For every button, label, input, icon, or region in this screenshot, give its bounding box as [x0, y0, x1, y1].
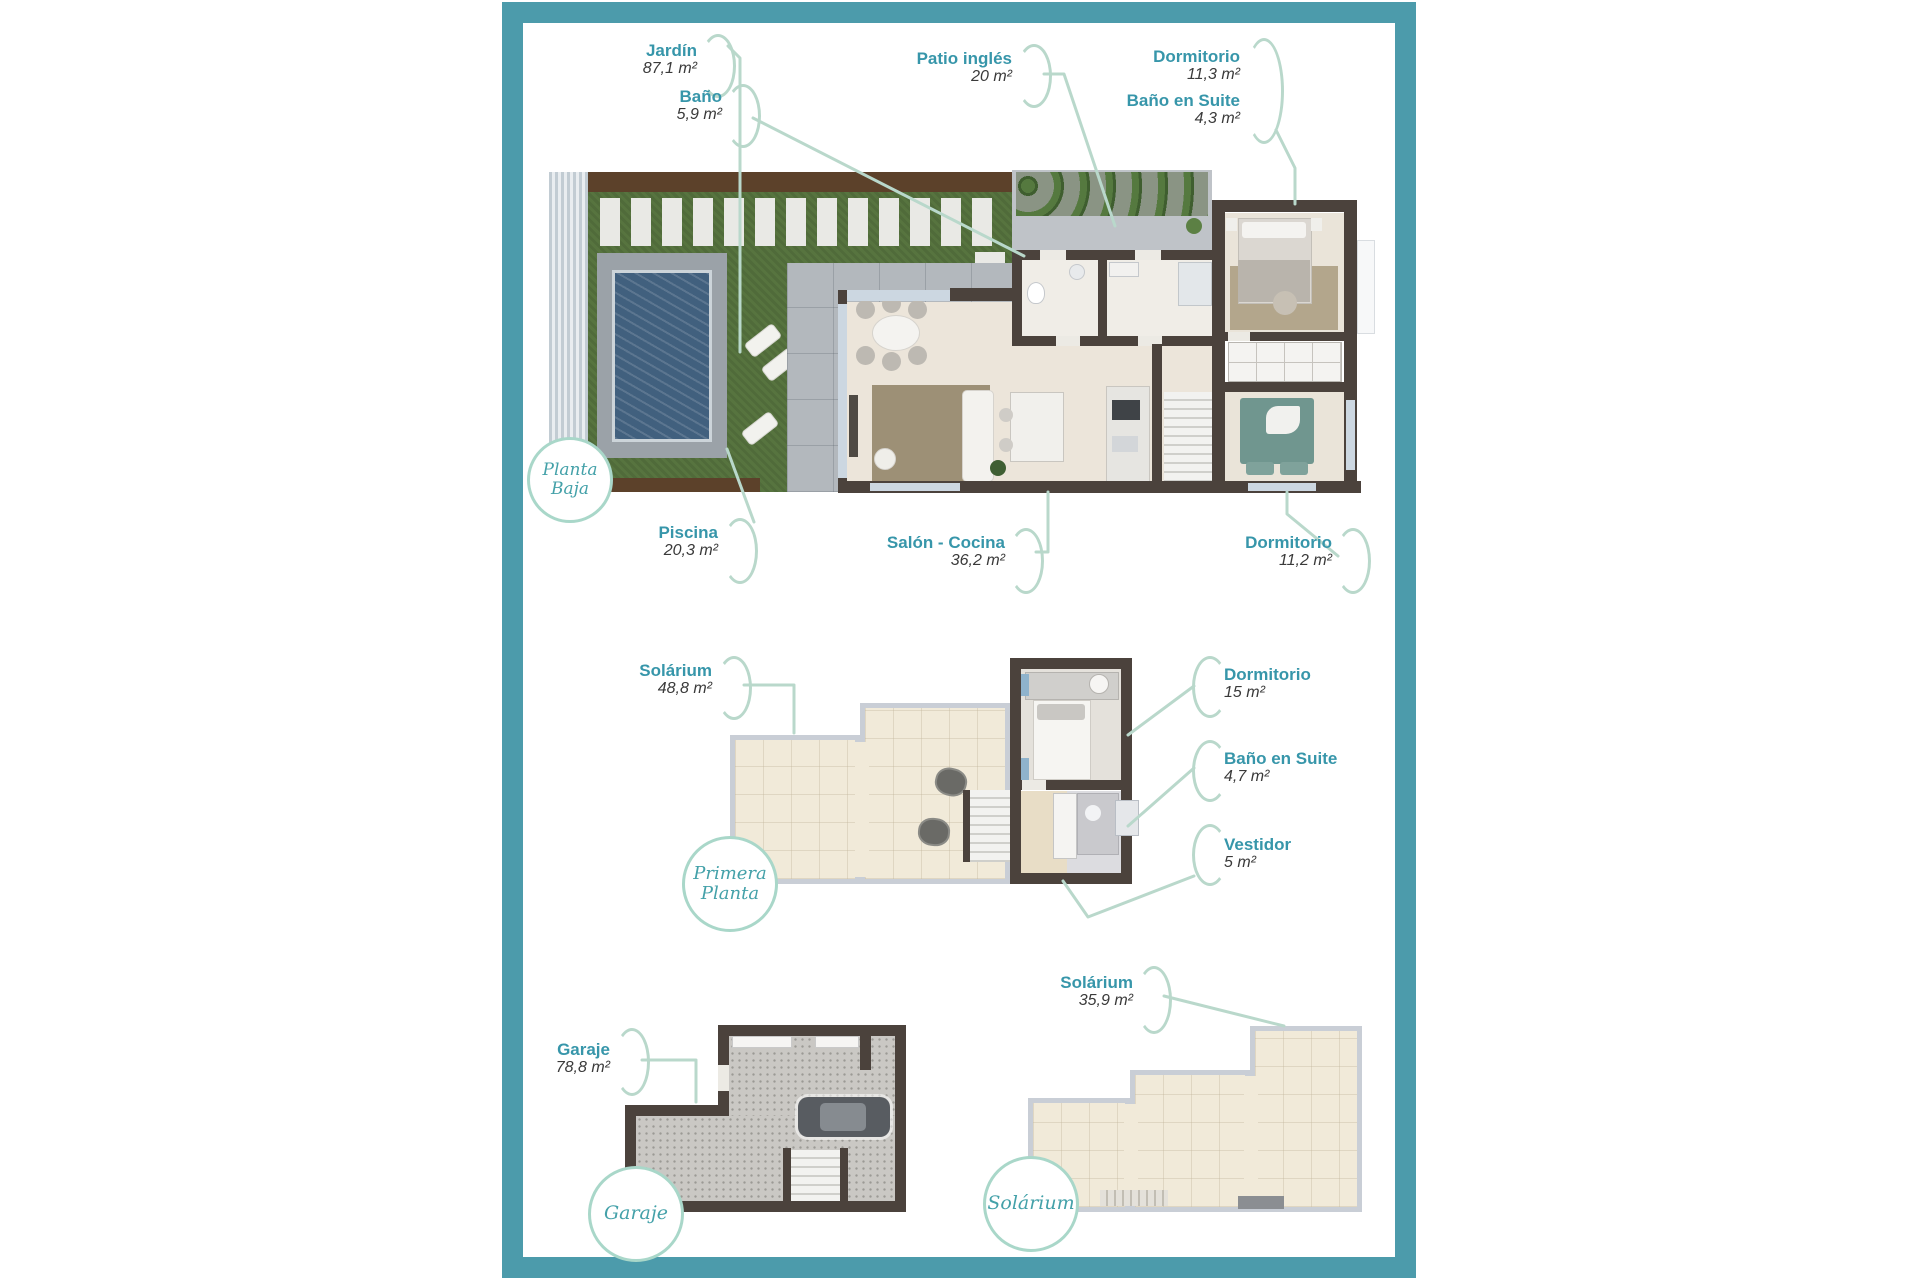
wall	[718, 1025, 906, 1036]
closet	[1053, 793, 1077, 859]
shelf	[732, 1036, 792, 1048]
callout-solarium-488: Solárium 48,8 m²	[562, 662, 712, 699]
door-opening	[718, 1065, 729, 1091]
nightstand	[1311, 218, 1322, 231]
stepping-stones	[600, 198, 1000, 246]
wall	[783, 1148, 791, 1206]
callout-patio-ingles: Patio inglés 20 m²	[862, 50, 1012, 87]
chair	[882, 352, 901, 371]
dining-table	[872, 315, 920, 351]
callout-piscina: Piscina 20,3 m²	[568, 524, 718, 561]
pillow	[1280, 462, 1308, 475]
room-name: Patio inglés	[862, 50, 1012, 68]
callout-arc	[1335, 528, 1371, 594]
chair	[856, 300, 875, 319]
stair-block	[1238, 1196, 1284, 1209]
stool	[999, 408, 1013, 422]
room-area: 87,1 m²	[547, 60, 697, 78]
curtain	[1021, 758, 1029, 780]
room-name: Dormitorio	[1182, 534, 1332, 552]
toilet	[1027, 282, 1045, 304]
badge-line: Solárium	[987, 1193, 1074, 1214]
floorplan-primera-planta	[700, 650, 1180, 895]
room-name: Baño en Suite	[1090, 92, 1240, 110]
badge-line: Planta	[701, 884, 759, 904]
badge-line: Garaje	[604, 1203, 668, 1224]
callout-arc	[1016, 44, 1052, 108]
room-area: 35,9 m²	[983, 992, 1133, 1010]
room-name: Solárium	[983, 974, 1133, 992]
callout-vestidor: Vestidor 5 m²	[1224, 836, 1374, 873]
window-wall	[838, 290, 847, 492]
wall	[1344, 200, 1357, 312]
wall	[1010, 658, 1132, 669]
room-name: Salón - Cocina	[855, 534, 1005, 552]
wall	[1012, 336, 1225, 346]
badge-line: Planta	[543, 461, 598, 480]
callout-jardin: Jardín 87,1 m²	[547, 42, 697, 79]
door-opening	[1135, 250, 1161, 260]
curtain	[1021, 674, 1029, 696]
room-name: Piscina	[568, 524, 718, 542]
shelf	[815, 1036, 859, 1048]
chair	[856, 346, 875, 365]
room-area: 78,8 m²	[460, 1059, 610, 1077]
room-name: Jardín	[547, 42, 697, 60]
callout-bano-suite-43: Baño en Suite 4,3 m²	[1090, 92, 1240, 129]
door-opening	[1040, 250, 1066, 260]
vanity	[1109, 262, 1139, 277]
tv-console	[849, 395, 858, 457]
badge-garaje: Garaje	[588, 1166, 684, 1262]
room-name: Vestidor	[1224, 836, 1374, 854]
bed-throw	[1266, 406, 1300, 434]
wall	[838, 290, 847, 304]
room-area: 4,7 m²	[1224, 768, 1374, 786]
side-terrace	[1357, 240, 1375, 334]
badge-primera-planta: Primera Planta	[682, 836, 778, 932]
callout-arc	[1008, 528, 1044, 594]
wall	[840, 1148, 848, 1206]
terrace-joint	[1244, 1076, 1258, 1204]
plants	[1016, 172, 1208, 216]
shower	[1115, 800, 1139, 836]
door-opening	[1228, 332, 1250, 341]
wall	[1212, 200, 1357, 212]
stairs	[1164, 392, 1212, 482]
wall	[860, 1025, 871, 1070]
pillows	[1242, 222, 1306, 238]
stool	[999, 438, 1013, 452]
callout-arc	[1192, 740, 1228, 802]
washbasin	[1085, 805, 1101, 821]
chair	[908, 300, 927, 319]
floorplan-brochure-page: Jardín 87,1 m² Baño 5,9 m² Patio inglés …	[0, 0, 1920, 1280]
pool	[612, 270, 712, 442]
room-area: 11,2 m²	[1182, 552, 1332, 570]
wall	[625, 1105, 729, 1116]
floorplan-planta-baja	[549, 170, 1361, 492]
callout-dormitorio-15: Dormitorio 15 m²	[1224, 666, 1374, 703]
badge-line: Baja	[551, 480, 589, 499]
callout-bano: Baño 5,9 m²	[572, 88, 722, 125]
room-area: 4,3 m²	[1090, 110, 1240, 128]
sink	[1112, 436, 1138, 452]
room-name: Dormitorio	[1090, 48, 1240, 66]
wardrobe	[1228, 342, 1342, 382]
callout-garaje: Garaje 78,8 m²	[460, 1041, 610, 1078]
wall	[1212, 200, 1225, 340]
pillow	[1246, 462, 1274, 475]
callout-arc	[1192, 824, 1228, 886]
washbasin	[1069, 264, 1085, 280]
callout-arc	[1244, 38, 1284, 144]
room-name: Dormitorio	[1224, 666, 1374, 684]
room-area: 36,2 m²	[855, 552, 1005, 570]
kitchen-island	[1010, 392, 1064, 462]
badge-line: Primera	[693, 864, 767, 884]
badge-planta-baja: Planta Baja	[527, 437, 613, 523]
window	[1248, 483, 1316, 491]
callout-arc	[1192, 656, 1228, 718]
plant	[990, 460, 1006, 476]
stairs	[1100, 1190, 1168, 1206]
pouf	[874, 448, 896, 470]
door-opening	[1022, 780, 1046, 790]
wall	[1225, 382, 1357, 392]
wall	[1010, 658, 1021, 884]
wall	[1121, 658, 1132, 884]
shower	[1178, 262, 1212, 306]
wall	[1098, 258, 1107, 346]
wall	[950, 288, 1014, 301]
stairs	[791, 1150, 840, 1201]
room-area: 48,8 m²	[562, 680, 712, 698]
pouf	[1273, 291, 1297, 315]
callout-salon-cocina: Salón - Cocina 36,2 m²	[855, 534, 1005, 571]
room-area: 15 m²	[1224, 684, 1374, 702]
callout-arc	[614, 1028, 650, 1096]
wall	[1010, 873, 1132, 884]
callout-arc	[725, 84, 761, 148]
chair	[908, 346, 927, 365]
car-roof	[820, 1103, 866, 1131]
door-opening	[1056, 336, 1080, 346]
wall	[1212, 340, 1225, 483]
mulch-strip	[588, 172, 1012, 192]
pillows	[1037, 704, 1085, 720]
stool	[1089, 674, 1109, 694]
callout-bano-suite-47: Baño en Suite 4,7 m²	[1224, 750, 1374, 787]
room-area: 20 m²	[862, 68, 1012, 86]
callout-arc	[716, 656, 752, 720]
terrace-joint	[855, 742, 869, 877]
callout-dormitorio-113: Dormitorio 11,3 m²	[1090, 48, 1240, 85]
window	[1346, 400, 1355, 470]
bathtub	[1077, 793, 1119, 855]
room-area: 11,3 m²	[1090, 66, 1240, 84]
callout-dormitorio-112: Dormitorio 11,2 m²	[1182, 534, 1332, 571]
plant	[1186, 218, 1202, 234]
room-name: Solárium	[562, 662, 712, 680]
stairs	[963, 790, 1010, 862]
room-name: Baño	[572, 88, 722, 106]
nightstand	[1226, 218, 1237, 231]
cooktop	[1112, 400, 1140, 420]
terrace-joint	[1124, 1104, 1138, 1204]
room-area: 5,9 m²	[572, 106, 722, 124]
roof-terrace	[1250, 1026, 1362, 1212]
room-name: Baño en Suite	[1224, 750, 1374, 768]
window	[870, 483, 960, 491]
wall	[895, 1025, 906, 1212]
mulch-strip	[588, 478, 760, 492]
wall	[1152, 344, 1162, 483]
callout-arc	[1136, 966, 1172, 1034]
callout-solarium-359: Solárium 35,9 m²	[983, 974, 1133, 1011]
room-area: 5 m²	[1224, 854, 1374, 872]
room-name: Garaje	[460, 1041, 610, 1059]
callout-arc	[722, 518, 758, 584]
room-area: 20,3 m²	[568, 542, 718, 560]
badge-solarium: Solárium	[983, 1156, 1079, 1252]
